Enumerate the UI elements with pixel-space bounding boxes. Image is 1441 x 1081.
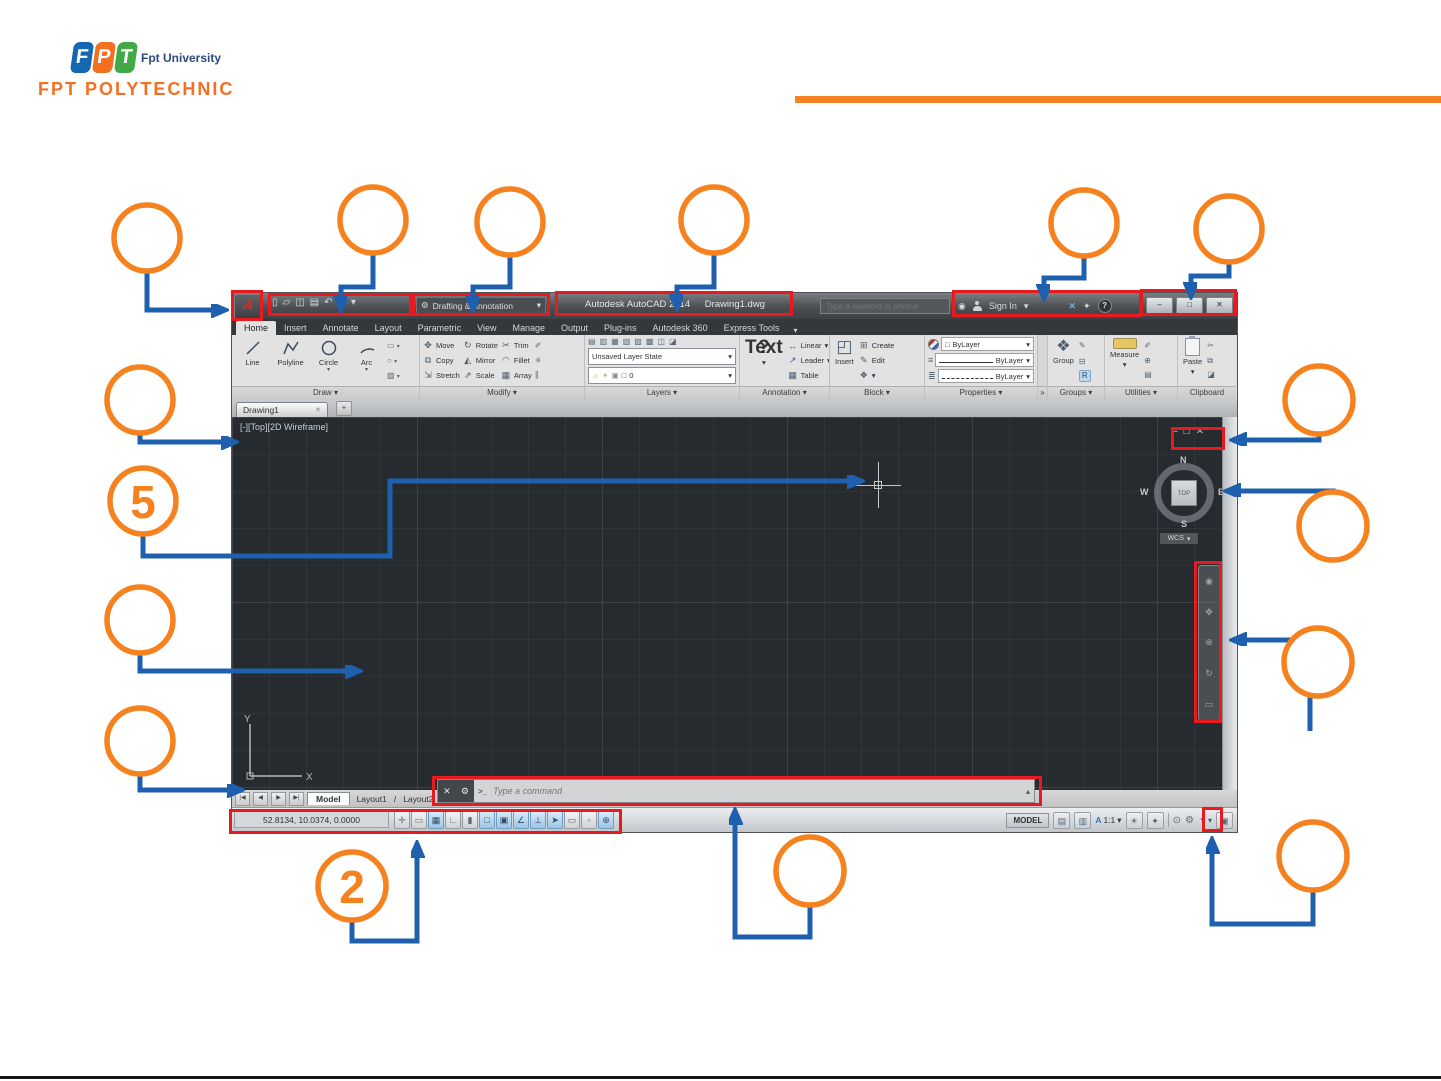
panel-label-draw[interactable]: Draw ▾ bbox=[232, 386, 419, 400]
callout-circle-title bbox=[681, 187, 747, 253]
tab-layout[interactable]: Layout bbox=[367, 321, 410, 335]
fpt-university-text: Fpt University bbox=[141, 51, 221, 65]
bulb-icon: ☼ bbox=[592, 371, 599, 380]
paste-special-icon[interactable]: ◪ bbox=[1207, 368, 1215, 382]
callout-circle-viewcube bbox=[1299, 492, 1367, 560]
linetype-icon: ≣ bbox=[928, 371, 936, 382]
ellipse-tool-icon[interactable]: ○ ▾ bbox=[387, 354, 400, 369]
quick-view-layouts-icon[interactable]: ▤ bbox=[1053, 812, 1070, 829]
insert-block-tool[interactable]: ◰ Insert bbox=[833, 337, 856, 384]
arrow-viewport-controls bbox=[1236, 434, 1319, 440]
leader-tool[interactable]: ↗Leader▾ bbox=[788, 353, 829, 368]
color-select[interactable]: □ByLayer▾ bbox=[941, 337, 1034, 351]
file-tab-bar: Drawing1 ✕ + bbox=[232, 400, 1237, 417]
viewport-controls-label[interactable]: [-][Top][2D Wireframe] bbox=[240, 422, 328, 432]
drawing-file-tab[interactable]: Drawing1 ✕ bbox=[236, 402, 328, 417]
tab-model[interactable]: Model bbox=[307, 792, 350, 805]
chevron-down-icon: ▾ bbox=[1117, 815, 1121, 826]
fpt-logo-letter-p: P bbox=[92, 42, 116, 73]
table-tool[interactable]: ▦Table bbox=[788, 368, 829, 383]
layer-state-dropdown[interactable]: Unsaved Layer State ▾ bbox=[588, 348, 736, 365]
arc-icon bbox=[358, 339, 376, 357]
panel-clipboard: Paste ▾ ✂ ⧉ ◪ Clipboard bbox=[1178, 335, 1236, 400]
slide-bottom-line bbox=[0, 1076, 1441, 1079]
trim-icon: ✂ bbox=[501, 340, 511, 351]
fillet-icon: ◠ bbox=[501, 355, 511, 366]
ribbon-tab-bar: Home Insert Annotate Layout Parametric V… bbox=[232, 319, 1237, 335]
fillet-tool[interactable]: ◠Fillet bbox=[501, 353, 532, 368]
line-icon bbox=[244, 339, 262, 357]
group-icon: ❖ bbox=[1056, 338, 1070, 355]
group-manager-badge[interactable]: R bbox=[1079, 370, 1091, 382]
tab-home[interactable]: Home bbox=[236, 321, 276, 335]
new-drawing-tab-button[interactable]: + bbox=[336, 401, 352, 416]
rotate-tool[interactable]: ↻Rotate bbox=[463, 338, 498, 353]
rotate-icon: ↻ bbox=[463, 340, 473, 351]
scale-icon: ⇗ bbox=[463, 370, 473, 381]
file-tab-close-icon[interactable]: ✕ bbox=[315, 406, 321, 414]
crosshair-pickbox bbox=[874, 481, 882, 489]
panel-label-utilities[interactable]: Utilities ▾ bbox=[1105, 386, 1177, 400]
highlight-window-controls bbox=[1140, 289, 1237, 316]
callout-circle-viewport-label bbox=[107, 367, 173, 433]
block-mini-icon: ❖ bbox=[859, 370, 869, 381]
first-layout-button[interactable]: |◀ bbox=[235, 792, 250, 806]
lock-icon: ▣ bbox=[612, 371, 619, 380]
copy-clip-icon[interactable]: ⧉ bbox=[1207, 354, 1215, 368]
mirror-tool[interactable]: ◭Mirror bbox=[463, 353, 498, 368]
callout-circle-crosshair bbox=[110, 468, 176, 534]
layer-match-icon[interactable]: ▩ bbox=[646, 337, 654, 346]
scale-tool[interactable]: ⇗Scale bbox=[463, 368, 498, 383]
model-space-button[interactable]: MODEL bbox=[1006, 813, 1049, 828]
trim-tool[interactable]: ✂Trim bbox=[501, 338, 532, 353]
wcs-dropdown[interactable]: WCS ▾ bbox=[1160, 533, 1198, 544]
point-icon[interactable]: ⊕ bbox=[1144, 354, 1152, 368]
circle-tool[interactable]: Circle ▾ bbox=[311, 337, 346, 384]
insert-icon: ◰ bbox=[836, 338, 852, 356]
panel-block: ◰ Insert ⊞Create ✎Edit ❖▾ Block ▾ bbox=[830, 335, 925, 400]
panel-groups: ❖ Group ✎ ⊟ R Groups ▾ bbox=[1048, 335, 1105, 400]
highlight-app-menu bbox=[231, 290, 263, 321]
next-layout-button[interactable]: ▶ bbox=[271, 792, 286, 806]
quick-calc-icon[interactable]: ▤ bbox=[1144, 368, 1152, 382]
quick-select-icon[interactable]: ✐ bbox=[1144, 339, 1152, 353]
linear-icon: ↔ bbox=[788, 341, 798, 351]
slide-divider-bar bbox=[795, 96, 1441, 103]
panel-label-layers[interactable]: Layers ▾ bbox=[585, 386, 739, 400]
viewcube-south[interactable]: S bbox=[1181, 519, 1187, 529]
callout-circle-command-line bbox=[776, 837, 844, 905]
prev-layout-button[interactable]: ◀ bbox=[253, 792, 268, 806]
drawing-canvas[interactable]: [-][Top][2D Wireframe] –□✕ N W E S TOP W… bbox=[232, 417, 1237, 790]
hatch-tool-icon[interactable]: ▨ ▾ bbox=[387, 369, 400, 384]
panel-label-groups[interactable]: Groups ▾ bbox=[1048, 386, 1104, 400]
tab-output[interactable]: Output bbox=[553, 321, 596, 335]
layer-prev-icon[interactable]: ◫ bbox=[657, 337, 665, 346]
copy-tool[interactable]: ⧉Copy bbox=[423, 353, 460, 368]
layer-freeze-icon[interactable]: ▧ bbox=[623, 337, 631, 346]
create-block-icon: ⊞ bbox=[859, 340, 869, 351]
settings-gear-icon[interactable]: ⚙ bbox=[1185, 815, 1194, 826]
layer-off-icon[interactable]: ▥ bbox=[600, 337, 608, 346]
ribbon-overflow[interactable]: » bbox=[1038, 335, 1048, 400]
layer-state-icon[interactable]: ◪ bbox=[669, 337, 677, 346]
callout-circle-clean-screen bbox=[1279, 822, 1347, 890]
fpt-logo: F P T bbox=[72, 42, 136, 73]
stretch-icon: ⇲ bbox=[423, 370, 433, 381]
tab-parametric[interactable]: Parametric bbox=[410, 321, 470, 335]
highlight-quick-access bbox=[268, 293, 412, 316]
arrow-viewport-label bbox=[140, 433, 232, 442]
arc-caret-icon[interactable]: ▾ bbox=[365, 368, 368, 372]
arrow-app-menu bbox=[147, 271, 222, 310]
panel-label-block[interactable]: Block ▾ bbox=[830, 386, 924, 400]
text-tool[interactable]: ? Text ▾ bbox=[743, 337, 785, 384]
tab-layout1[interactable]: Layout1 bbox=[353, 793, 391, 805]
status-right-cluster: MODEL ▤ ▥ A 1:1 ▾ ☀ ✦ ⊙ ⚙ ◔ ▾ ▣ bbox=[1006, 811, 1233, 829]
viewcube-north[interactable]: N bbox=[1180, 455, 1187, 465]
autoscale-icon[interactable]: ✦ bbox=[1147, 812, 1164, 829]
object-color-swatch bbox=[928, 339, 939, 350]
ribbon: Line Polyline Circle ▾ Arc ▾ bbox=[232, 335, 1237, 400]
polyline-tool[interactable]: Polyline bbox=[273, 337, 308, 384]
highlight-navbar bbox=[1194, 561, 1222, 723]
edit-block-icon: ✎ bbox=[859, 355, 869, 366]
tab-plugins[interactable]: Plug-ins bbox=[596, 321, 645, 335]
ucs-icon: Y X bbox=[236, 714, 320, 786]
panel-label-properties[interactable]: Properties ▾ bbox=[925, 386, 1037, 400]
array-icon: ▦ bbox=[501, 370, 511, 381]
arrow-command-line bbox=[735, 814, 810, 937]
highlight-clean-screen bbox=[1202, 807, 1223, 832]
callout-circle-ucs bbox=[107, 708, 173, 774]
paste-icon bbox=[1185, 338, 1200, 356]
leader-icon: ↗ bbox=[788, 355, 798, 366]
search-input[interactable] bbox=[824, 301, 946, 312]
table-icon: ▦ bbox=[788, 370, 798, 381]
line-tool[interactable]: Line bbox=[235, 337, 270, 384]
arrow-clean-screen bbox=[1212, 843, 1313, 924]
panel-label-modify[interactable]: Modify ▾ bbox=[420, 386, 584, 400]
chevron-down-icon: ▾ bbox=[728, 371, 732, 380]
callout-circle-infocenter bbox=[1051, 190, 1117, 256]
chevron-down-icon: ▾ bbox=[1187, 535, 1191, 543]
explode-icon[interactable]: ✳ bbox=[535, 354, 542, 368]
callout-circle-quick-access bbox=[340, 187, 406, 253]
canvas-scroll-strip[interactable] bbox=[1222, 417, 1237, 790]
group-edit-icon[interactable]: ✎ bbox=[1079, 339, 1091, 353]
callout-number-2: 2 bbox=[339, 861, 365, 913]
measure-tool[interactable]: Measure ▾ bbox=[1108, 337, 1141, 384]
ucs-x-label: X bbox=[306, 772, 313, 783]
tab-insert[interactable]: Insert bbox=[276, 321, 315, 335]
callout-circle-app-menu bbox=[114, 205, 180, 271]
highlight-title bbox=[555, 291, 793, 316]
copy-icon: ⧉ bbox=[423, 355, 433, 366]
panel-label-clipboard: Clipboard bbox=[1178, 386, 1236, 400]
arrow-viewcube bbox=[1230, 491, 1333, 540]
autocad-window: A ▯ ▱ ◫ ▤ ↶ ↷ ▾ ⚙ Drafting & Annotation … bbox=[232, 293, 1237, 832]
offset-icon[interactable]: ∥ bbox=[535, 368, 542, 382]
linetype-select[interactable]: ByLayer▾ bbox=[938, 369, 1034, 383]
stretch-tool[interactable]: ⇲Stretch bbox=[423, 368, 460, 383]
tab-autodesk360[interactable]: Autodesk 360 bbox=[645, 321, 716, 335]
callout-circle-drawing-area bbox=[107, 587, 173, 653]
callout-circle-window-controls bbox=[1196, 196, 1262, 262]
create-block-tool[interactable]: ⊞Create bbox=[859, 338, 895, 353]
infocenter-search[interactable] bbox=[820, 298, 950, 314]
callout-circle-status-left bbox=[318, 852, 386, 920]
current-layer-name: 0 bbox=[629, 371, 725, 380]
tab-manage[interactable]: Manage bbox=[504, 321, 553, 335]
slide: F P T Fpt University FPT POLYTECHNIC A ▯… bbox=[0, 0, 1441, 1081]
move-tool[interactable]: ✥Move bbox=[423, 338, 460, 353]
annotation-scale-control[interactable]: A 1:1 ▾ bbox=[1095, 815, 1121, 826]
group-tool[interactable]: ❖ Group bbox=[1051, 337, 1076, 384]
quick-view-drawings-icon[interactable]: ▥ bbox=[1074, 812, 1091, 829]
array-tool[interactable]: ▦Array bbox=[501, 368, 532, 383]
panel-annotation: ? Text ▾ ↔Linear▾ ↗Leader▾ ▦Table Annota… bbox=[740, 335, 830, 400]
cut-icon[interactable]: ✂ bbox=[1207, 339, 1215, 353]
sun-icon: ☀ bbox=[602, 371, 609, 380]
ribbon-options-icon[interactable]: ▾ bbox=[793, 326, 797, 335]
linear-dimension-tool[interactable]: ↔Linear▾ bbox=[788, 338, 829, 353]
fpt-logo-letter-t: T bbox=[114, 42, 138, 73]
panel-utilities: Measure ▾ ✐ ⊕ ▤ Utilities ▾ bbox=[1105, 335, 1178, 400]
paste-tool[interactable]: Paste ▾ bbox=[1181, 337, 1204, 384]
ucs-y-label: Y bbox=[244, 714, 251, 725]
arrow-ucs bbox=[140, 774, 238, 790]
viewcube-top-face[interactable]: TOP bbox=[1171, 480, 1197, 506]
measure-icon bbox=[1113, 338, 1137, 349]
panel-draw: Line Polyline Circle ▾ Arc ▾ bbox=[232, 335, 420, 400]
annotation-visibility-icon[interactable]: ☀ bbox=[1126, 812, 1143, 829]
panel-modify: ✥Move ⧉Copy ⇲Stretch ↻Rotate ◭Mirror ⇗Sc… bbox=[420, 335, 585, 400]
highlight-viewport-controls bbox=[1171, 427, 1225, 450]
panel-properties: □ByLayer▾ ≡ ByLayer▾ ≣ ByLayer▾ bbox=[925, 335, 1038, 400]
layer-properties-icon[interactable]: ▤ bbox=[588, 337, 596, 346]
last-layout-button[interactable]: ▶| bbox=[289, 792, 304, 806]
lineweight-icon: ≡ bbox=[928, 355, 933, 365]
erase-icon[interactable]: ✐ bbox=[535, 339, 542, 353]
rectangle-tool-icon[interactable]: ▭ ▾ bbox=[387, 339, 400, 354]
workspace-switch-icon[interactable]: ⊙ bbox=[1173, 815, 1181, 826]
tab-view[interactable]: View bbox=[469, 321, 504, 335]
highlight-command-line bbox=[432, 776, 1042, 806]
chevron-down-icon: ▾ bbox=[728, 352, 732, 361]
panel-label-annotation[interactable]: Annotation ▾ bbox=[740, 386, 829, 400]
circle-icon bbox=[320, 339, 338, 357]
arrow-navbar bbox=[1236, 640, 1310, 731]
tab-annotate[interactable]: Annotate bbox=[315, 321, 367, 335]
layer-lock-icon[interactable]: ▨ bbox=[634, 337, 642, 346]
edit-block-tool[interactable]: ✎Edit bbox=[859, 353, 895, 368]
highlight-workspace bbox=[412, 293, 550, 316]
polyline-icon bbox=[282, 339, 300, 357]
lineweight-select[interactable]: ByLayer▾ bbox=[935, 353, 1034, 367]
highlight-status-left bbox=[229, 809, 622, 834]
move-icon: ✥ bbox=[423, 340, 433, 351]
panel-layers: ▤ ▥ ▦ ▧ ▨ ▩ ◫ ◪ Unsaved Layer State ▾ bbox=[585, 335, 740, 400]
mirror-icon: ◭ bbox=[463, 355, 473, 366]
viewcube-west[interactable]: W bbox=[1140, 487, 1149, 497]
callout-number-5: 5 bbox=[130, 476, 156, 528]
ungroup-icon[interactable]: ⊟ bbox=[1079, 355, 1091, 369]
layer-isolate-icon[interactable]: ▦ bbox=[611, 337, 619, 346]
arc-tool[interactable]: Arc ▾ bbox=[349, 337, 384, 384]
fpt-logo-letter-f: F bbox=[70, 42, 94, 73]
callout-circle-viewport-controls bbox=[1285, 366, 1353, 434]
callout-circle-navbar bbox=[1284, 628, 1352, 696]
highlight-infocenter bbox=[952, 290, 1142, 317]
circle-caret-icon[interactable]: ▾ bbox=[327, 368, 330, 372]
arrow-status-left bbox=[352, 847, 417, 941]
tab-express-tools[interactable]: Express Tools bbox=[716, 321, 788, 335]
block-attributes-tool[interactable]: ❖▾ bbox=[859, 368, 895, 383]
callout-circle-workspace bbox=[477, 189, 543, 255]
fpt-polytechnic-text: FPT POLYTECHNIC bbox=[38, 79, 234, 100]
layer-color-swatch: □ bbox=[622, 371, 627, 380]
layer-dropdown[interactable]: ☼ ☀ ▣ □ 0 ▾ bbox=[588, 367, 736, 384]
